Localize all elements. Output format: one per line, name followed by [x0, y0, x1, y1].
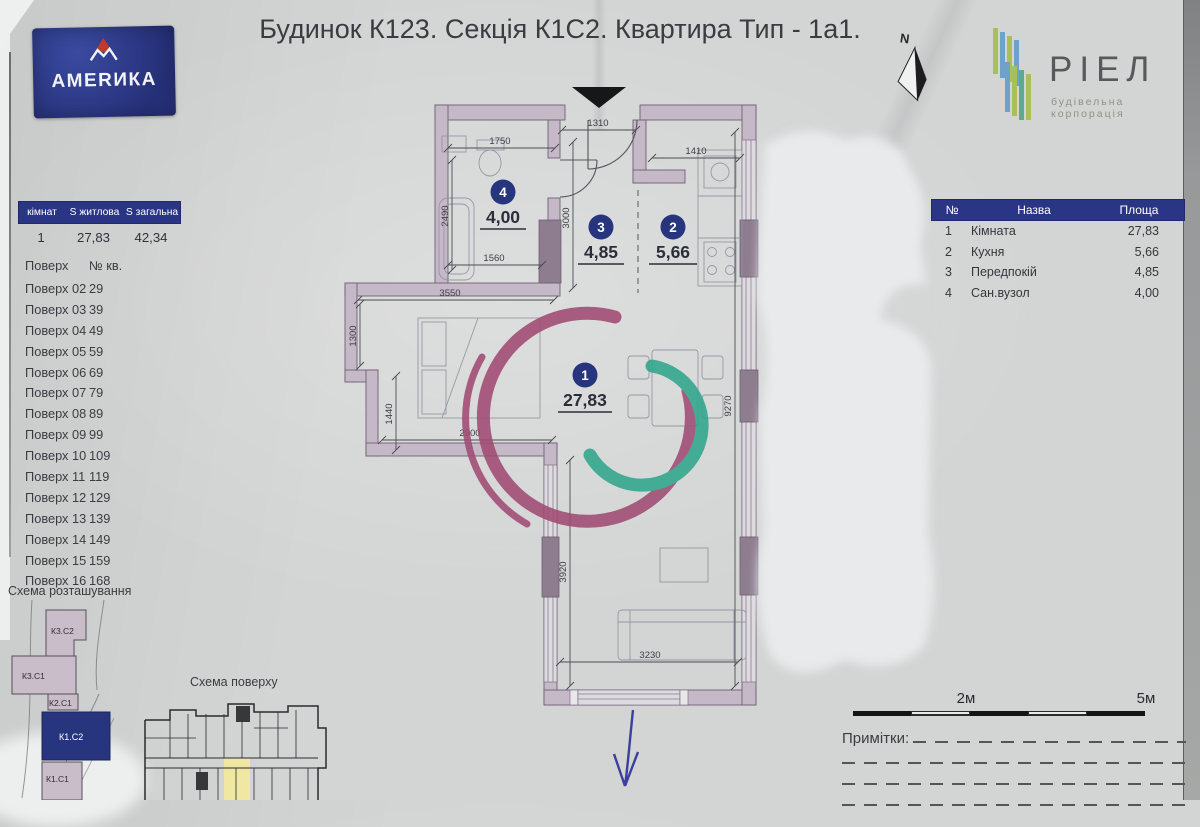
highlighted-unit [224, 758, 250, 800]
header-cell: Назва [972, 203, 1096, 217]
dim-label: 9270 [723, 395, 734, 416]
building-k1c1: К1.С1 [42, 762, 82, 800]
floor-row-value: 59 [89, 344, 175, 359]
table-row: 3 Передпокій 4,85 [931, 262, 1185, 283]
floor-row-value: 139 [89, 511, 175, 526]
room-area: 27,83 [563, 390, 607, 410]
floors-header: Поверх № кв. [25, 258, 175, 273]
cell-total-area: 42,34 [123, 230, 179, 245]
header-cell: Площа [1096, 203, 1182, 217]
floor-row-label: Поверх 04 [25, 323, 89, 338]
cell-area: 5,66 [1095, 245, 1181, 259]
dim-label: 3000 [561, 207, 572, 228]
north-label: N [899, 30, 910, 46]
room-area: 4,85 [584, 242, 618, 262]
dim-label: 3550 [439, 288, 460, 299]
floor-row-label: Поверх 10 [25, 448, 89, 463]
apartment-floor-plan: 1750 1310 1410 2490 1560 3000 3550 1300 … [330, 50, 800, 800]
floor-row-value: 149 [89, 532, 175, 547]
scale-bar-segments [853, 711, 1145, 716]
dim-label: 1750 [489, 136, 510, 147]
floor-row-label: Поверх 13 [25, 511, 89, 526]
mountain-icon [85, 36, 122, 67]
building-label: К1.С1 [46, 774, 69, 784]
scale-segment [1028, 711, 1086, 716]
notes-label: Примітки: [842, 730, 913, 747]
cell-num: 4 [931, 286, 971, 300]
floor-row-label: Поверх 03 [25, 302, 89, 317]
floor-row-label: Поверх 05 [25, 344, 89, 359]
scale-segment [970, 711, 1028, 716]
dim-label: 1440 [384, 403, 395, 424]
floor-row-value: 29 [89, 281, 175, 296]
cell-area: 4,00 [1095, 286, 1181, 300]
floor-row-value: 69 [89, 365, 175, 380]
room-number: 3 [597, 220, 605, 235]
summary-table: кімнат S житлова S загальна 1 27,83 42,3… [18, 201, 181, 250]
scale-bar: 2м 5м [845, 690, 1175, 722]
floor-row-value: 49 [89, 323, 175, 338]
notes-line [842, 783, 1186, 785]
floors-list: Поверх 0229 Поверх 0339 Поверх 0449 Пове… [25, 278, 175, 591]
floor-row-value: 119 [89, 469, 175, 484]
location-scheme-label: Схема розташування [8, 584, 131, 598]
room-table-header: № Назва Площа [931, 199, 1185, 221]
floor-row-label: Поверх 08 [25, 406, 89, 421]
notes-line [842, 762, 1186, 764]
building-label: К1.С2 [59, 732, 83, 742]
scale-label-5m: 5м [1129, 690, 1163, 707]
floors-col2: № кв. [89, 258, 175, 273]
floor-row-value: 39 [89, 302, 175, 317]
cell-area: 27,83 [1095, 224, 1181, 238]
table-row: 1 Кімната 27,83 [931, 221, 1185, 242]
room-number: 4 [499, 185, 507, 200]
table-row: 2 Кухня 5,66 [931, 242, 1185, 263]
doors [560, 120, 637, 197]
scale-segment [853, 711, 911, 716]
building-k3c1: К3.С1 [12, 656, 76, 694]
notes-line [842, 804, 1186, 806]
floor-row-value: 79 [89, 385, 175, 400]
header-cell: № [932, 203, 972, 217]
page-title: Будинок К123. Секція К1С2. Квартира Тип … [230, 14, 890, 45]
floor-scheme-label: Схема поверху [190, 675, 278, 689]
dim-label: 3920 [558, 561, 569, 582]
entry-arrow-icon [572, 87, 626, 108]
header-cell: кімнат [19, 207, 65, 218]
windows [544, 140, 756, 705]
floor-row-label: Поверх 02 [25, 281, 89, 296]
riel-logo: РІЕЛ будівельна корпорація [985, 28, 1195, 128]
amerika-logo: АМЕRИКА [32, 26, 176, 119]
paper-edge-line [9, 52, 11, 557]
riel-logo-text: РІЕЛ [1049, 50, 1156, 90]
room-table: № Назва Площа 1 Кімната 27,83 2 Кухня 5,… [931, 199, 1185, 303]
room-area: 4,00 [486, 207, 520, 227]
watermark-logo [466, 313, 702, 524]
notes-line [913, 741, 1186, 743]
building-k1c2-highlighted: К1.С2 [42, 712, 110, 760]
riel-stripes-icon [985, 28, 1043, 122]
cell-num: 1 [931, 224, 971, 238]
cell-area: 4,85 [1095, 265, 1181, 279]
header-cell: S загальна [124, 207, 180, 218]
dim-label: 1310 [587, 118, 608, 129]
dim-label: 1410 [685, 146, 706, 157]
floor-row-label: Поверх 11 [25, 469, 89, 484]
floor-row-value: 159 [89, 553, 175, 568]
cell-name: Сан.вузол [971, 286, 1095, 300]
stair-core [196, 772, 208, 790]
dim-label: 1560 [483, 253, 504, 264]
floor-row-value: 99 [89, 427, 175, 442]
floors-col1: Поверх [25, 258, 89, 273]
amerika-logo-text: АМЕRИКА [51, 69, 157, 93]
header-cell: S житлова [65, 207, 124, 218]
floor-row-label: Поверх 15 [25, 553, 89, 568]
table-row: 4 Сан.вузол 4,00 [931, 283, 1185, 304]
notes-block: Примітки: [842, 726, 1186, 810]
floor-row-label: Поверх 06 [25, 365, 89, 380]
cell-rooms: 1 [18, 230, 64, 245]
location-scheme-map: К3.С2 К3.С1 К2.С1 К1.С2 К1.С1 [4, 598, 134, 800]
riel-logo-subtitle: будівельна корпорація [1051, 96, 1195, 120]
cell-name: Кухня [971, 245, 1095, 259]
cell-name: Передпокій [971, 265, 1095, 279]
scale-label-2m: 2м [949, 690, 983, 707]
scale-segment [1087, 711, 1145, 716]
dim-label: 2490 [440, 205, 451, 226]
building-label: К3.С1 [22, 671, 45, 681]
cell-name: Кімната [971, 224, 1095, 238]
room-area: 5,66 [656, 242, 690, 262]
room-number: 1 [581, 368, 589, 383]
floor-row-label: Поверх 12 [25, 490, 89, 505]
floor-row-label: Поверх 07 [25, 385, 89, 400]
dim-label: 3230 [639, 650, 660, 661]
exit-direction-arrow [614, 710, 638, 786]
floor-row-label: Поверх 14 [25, 532, 89, 547]
floor-row-value: 129 [89, 490, 175, 505]
room-number: 2 [669, 220, 677, 235]
summary-table-header: кімнат S житлова S загальна [18, 201, 181, 224]
floor-row-value: 109 [89, 448, 175, 463]
stair-core [236, 706, 250, 722]
building-k2c1: К2.С1 [48, 694, 78, 710]
floor-scheme-plan [136, 698, 336, 800]
summary-table-row: 1 27,83 42,34 [18, 224, 181, 250]
cell-num: 3 [931, 265, 971, 279]
floor-row-label: Поверх 09 [25, 427, 89, 442]
dim-label: 1300 [348, 325, 359, 346]
scale-segment [911, 711, 969, 716]
floor-row-value: 89 [89, 406, 175, 421]
building-label: К2.С1 [49, 698, 72, 708]
paper-corner [0, 0, 34, 48]
cell-living-area: 27,83 [64, 230, 123, 245]
cell-num: 2 [931, 245, 971, 259]
building-label: К3.С2 [51, 626, 74, 636]
